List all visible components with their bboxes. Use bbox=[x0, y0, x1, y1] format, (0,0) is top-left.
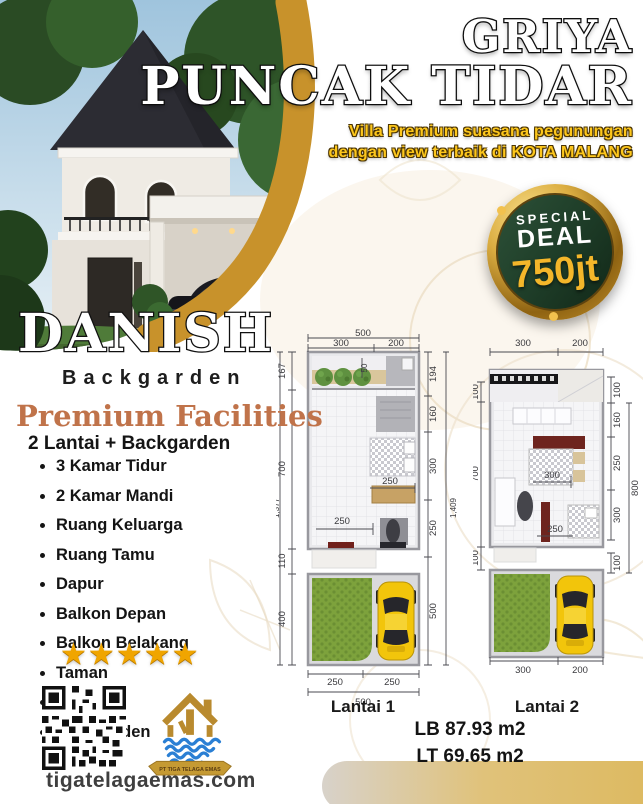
svg-text:100: 100 bbox=[473, 550, 481, 566]
list-item: Balkon Depan bbox=[56, 600, 189, 630]
subtitle-line1: Villa Premium suasana pegunungan bbox=[140, 121, 633, 142]
star-icon: ★ bbox=[88, 638, 116, 671]
svg-text:300: 300 bbox=[515, 338, 531, 349]
svg-text:100: 100 bbox=[612, 555, 623, 571]
product-variant: Backgarden bbox=[62, 367, 247, 390]
svg-text:194: 194 bbox=[428, 366, 439, 382]
list-item: Ruang Keluarga bbox=[56, 511, 189, 541]
svg-text:160: 160 bbox=[428, 406, 439, 422]
house-icon bbox=[165, 698, 216, 737]
floorplan-lantai-1: 500 300 200 167 700 110 400 1,377 194 16… bbox=[276, 326, 462, 718]
company-logo: PT TIGA TELAGA EMAS bbox=[138, 680, 242, 778]
svg-text:700: 700 bbox=[473, 466, 481, 482]
svg-text:200: 200 bbox=[572, 338, 588, 349]
svg-text:400: 400 bbox=[277, 611, 288, 627]
rating-stars: ★★★★★ bbox=[60, 637, 200, 672]
list-item: Dapur bbox=[56, 570, 189, 600]
car-top-view bbox=[555, 576, 595, 654]
flyer-page: GRIYA PUNCAK TIDAR Villa Premium suasana… bbox=[0, 0, 643, 804]
website-url: tigatelagaemas.com bbox=[46, 769, 256, 793]
svg-text:200: 200 bbox=[572, 665, 588, 676]
badge-dot-icon bbox=[549, 312, 558, 321]
svg-text:100: 100 bbox=[612, 382, 623, 398]
building-area: LB 87.93 m2 bbox=[335, 716, 605, 743]
svg-text:800: 800 bbox=[630, 480, 641, 496]
qr-code bbox=[42, 686, 126, 770]
land-area: LT 69.65 m2 bbox=[335, 743, 605, 770]
svg-text:250: 250 bbox=[334, 516, 350, 527]
floorplan-caption-1: Lantai 1 bbox=[298, 697, 428, 717]
svg-text:250: 250 bbox=[547, 524, 563, 535]
svg-text:200: 200 bbox=[388, 338, 404, 349]
facilities-heading: Premium Facilities bbox=[16, 399, 323, 433]
svg-text:500: 500 bbox=[355, 328, 371, 339]
svg-text:110: 110 bbox=[277, 553, 288, 568]
svg-text:300: 300 bbox=[515, 665, 531, 676]
subtitle-line2: dengan view terbaik di KOTA MALANG bbox=[140, 142, 633, 163]
svg-text:160: 160 bbox=[612, 412, 623, 428]
svg-text:50: 50 bbox=[360, 363, 369, 372]
star-icon: ★ bbox=[116, 638, 144, 671]
page-title-line2: PUNCAK TIDAR bbox=[140, 61, 633, 113]
svg-text:300: 300 bbox=[544, 470, 560, 481]
svg-text:300: 300 bbox=[428, 458, 439, 474]
svg-text:300: 300 bbox=[612, 507, 623, 523]
svg-text:1,377: 1,377 bbox=[276, 497, 281, 518]
area-info: LB 87.93 m2 LT 69.65 m2 bbox=[335, 716, 605, 770]
floorplan-caption-2: Lantai 2 bbox=[482, 697, 612, 717]
svg-text:250: 250 bbox=[327, 677, 343, 688]
svg-text:300: 300 bbox=[333, 338, 349, 349]
special-deal-badge: SPECIAL DEAL 750jt bbox=[487, 184, 623, 320]
list-item: 3 Kamar Tidur bbox=[56, 452, 189, 482]
badge-dot-icon bbox=[497, 206, 506, 215]
page-title-line1: GRIYA bbox=[140, 14, 633, 59]
list-item: Ruang Tamu bbox=[56, 541, 189, 571]
svg-text:100: 100 bbox=[473, 384, 481, 400]
svg-text:500: 500 bbox=[428, 603, 439, 619]
badge-price: 750jt bbox=[510, 247, 600, 297]
headline-block: GRIYA PUNCAK TIDAR Villa Premium suasana… bbox=[140, 14, 633, 163]
star-icon: ★ bbox=[144, 638, 172, 671]
svg-text:1,409: 1,409 bbox=[449, 497, 458, 518]
svg-text:167: 167 bbox=[277, 363, 288, 379]
svg-text:250: 250 bbox=[384, 677, 400, 688]
star-icon: ★ bbox=[172, 638, 200, 671]
svg-text:250: 250 bbox=[428, 520, 439, 536]
svg-text:250: 250 bbox=[612, 455, 623, 471]
svg-text:700: 700 bbox=[277, 461, 288, 477]
star-icon: ★ bbox=[60, 638, 88, 671]
product-name: DANISH bbox=[18, 308, 274, 360]
car-top-view bbox=[376, 582, 416, 660]
floorplan-lantai-2: 300 200 100 700 100 100 160 250 300 100 … bbox=[473, 330, 643, 682]
svg-text:250: 250 bbox=[382, 476, 398, 487]
list-item: 2 Kamar Mandi bbox=[56, 482, 189, 512]
